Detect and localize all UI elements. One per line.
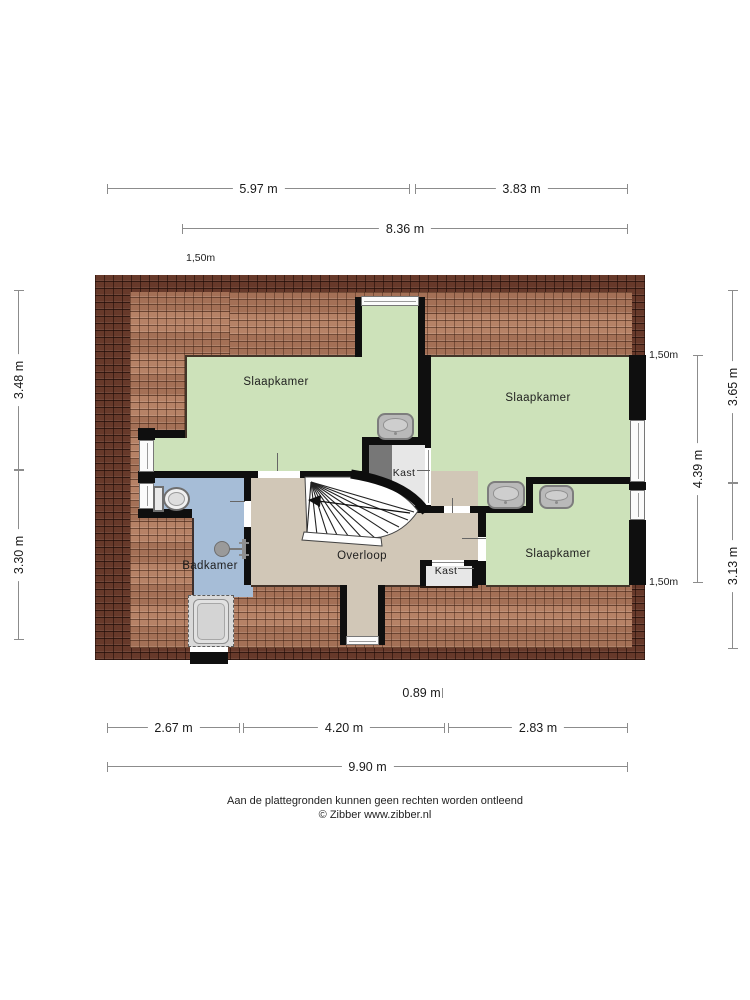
- toilet-bowl-icon: [163, 487, 190, 511]
- dimension-value: 3.48 m: [12, 354, 26, 406]
- height-marker: 1,50m: [649, 576, 678, 588]
- door-closet-2-line: [432, 562, 464, 563]
- dimension-top-2: 3.83 m: [415, 188, 628, 189]
- dimension-value: 5.97 m: [232, 182, 284, 196]
- wall: [629, 355, 646, 420]
- closet-2-edge: [420, 586, 478, 588]
- door-tick: [452, 498, 453, 513]
- wall: [138, 430, 185, 438]
- wall: [378, 585, 385, 645]
- wall: [629, 482, 646, 490]
- dimension-value: 3.30 m: [12, 529, 26, 581]
- dimension-value: 3.13 m: [726, 540, 740, 592]
- room-slaapkamer-1-dormer: [362, 302, 418, 362]
- room-label-slaapkamer-3: Slaapkamer: [525, 548, 590, 560]
- wall: [418, 297, 425, 357]
- window: [630, 490, 645, 520]
- window: [139, 440, 154, 472]
- sink-icon: [377, 413, 414, 440]
- room-label-badkamer: Badkamer: [182, 560, 238, 572]
- dimension-bottom-2: 4.20 m: [243, 727, 445, 728]
- dimension-right-2: 3.13 m: [732, 483, 733, 649]
- bathtub-icon: [193, 599, 229, 644]
- sink-icon: [487, 481, 525, 509]
- dimension-value: 4.20 m: [318, 721, 370, 735]
- shower-rail: [242, 539, 246, 559]
- dimension-value: 3.65 m: [726, 360, 740, 412]
- label-leader: [458, 568, 474, 569]
- dimension-right-1: 3.65 m: [732, 290, 733, 483]
- footer-credit: © Zibber www.zibber.nl: [0, 809, 750, 821]
- wall: [478, 513, 486, 537]
- dimension-value: 4.39 m: [691, 443, 705, 495]
- dimension-bottom-1: 2.67 m: [107, 727, 240, 728]
- wall: [472, 560, 478, 588]
- dimension-value: 0.89 m: [395, 686, 447, 700]
- closet-1-slope-area: [369, 445, 392, 506]
- room-slaapkamer-1-nook: [152, 438, 187, 474]
- room-label-overloop: Overloop: [337, 550, 387, 562]
- wall: [629, 520, 646, 585]
- door-tick: [277, 453, 278, 471]
- window-dormer-top: [361, 296, 419, 306]
- closet-1-door-line: [428, 450, 429, 503]
- floorplan-canvas: Slaapkamer Slaapkamer Slaapkamer Badkame…: [0, 0, 750, 1000]
- dimension-value: 9.90 m: [341, 760, 393, 774]
- wall: [244, 471, 251, 501]
- door-slaapkamer-3: [478, 537, 486, 561]
- door-tick: [462, 538, 486, 539]
- wall: [478, 561, 486, 585]
- dimension-value: 2.67 m: [147, 721, 199, 735]
- sink-icon: [539, 485, 574, 509]
- door-slaapkamer-2: [444, 506, 470, 513]
- dimension-bottom-3: 2.83 m: [448, 727, 628, 728]
- wall: [138, 509, 192, 518]
- door-slaapkamer-1: [258, 471, 300, 478]
- room-slaapkamer-2: [430, 355, 630, 483]
- wall: [418, 355, 431, 446]
- room-label-kast-2: Kast: [435, 565, 458, 577]
- shower-arm: [229, 548, 243, 550]
- window-dormer-bottom: [346, 636, 379, 645]
- wall: [533, 477, 630, 484]
- room-overloop-dormer: [347, 585, 378, 637]
- shower-icon: [214, 541, 230, 557]
- wall: [300, 471, 362, 478]
- dimension-bottom-dormer: 0.89 m: [400, 692, 443, 693]
- dimension-value: 3.83 m: [495, 182, 547, 196]
- dimension-right-inner: 4.39 m: [697, 355, 698, 583]
- dimension-left-1: 3.48 m: [18, 290, 19, 470]
- door-badkamer: [244, 501, 251, 527]
- height-marker: 1,50m: [649, 349, 678, 361]
- wall: [190, 652, 228, 664]
- wall: [355, 297, 362, 357]
- label-leader: [417, 470, 430, 471]
- wall: [526, 477, 533, 513]
- dimension-top-total: 8.36 m: [182, 228, 628, 229]
- dimension-value: 8.36 m: [379, 222, 431, 236]
- wall: [138, 471, 258, 478]
- dimension-value: 2.83 m: [512, 721, 564, 735]
- dimension-left-2: 3.30 m: [18, 470, 19, 640]
- dimension-bottom-total: 9.90 m: [107, 766, 628, 767]
- wall: [430, 506, 444, 513]
- room-label-slaapkamer-1: Slaapkamer: [243, 376, 308, 388]
- room-label-slaapkamer-2: Slaapkamer: [505, 392, 570, 404]
- door-tick: [230, 501, 245, 502]
- height-marker: 1,50m: [186, 252, 215, 264]
- footer-disclaimer: Aan de plattegronden kunnen geen rechten…: [0, 795, 750, 807]
- dimension-top-1: 5.97 m: [107, 188, 410, 189]
- room-label-kast-1: Kast: [393, 467, 416, 479]
- window: [139, 483, 154, 509]
- window: [630, 420, 645, 482]
